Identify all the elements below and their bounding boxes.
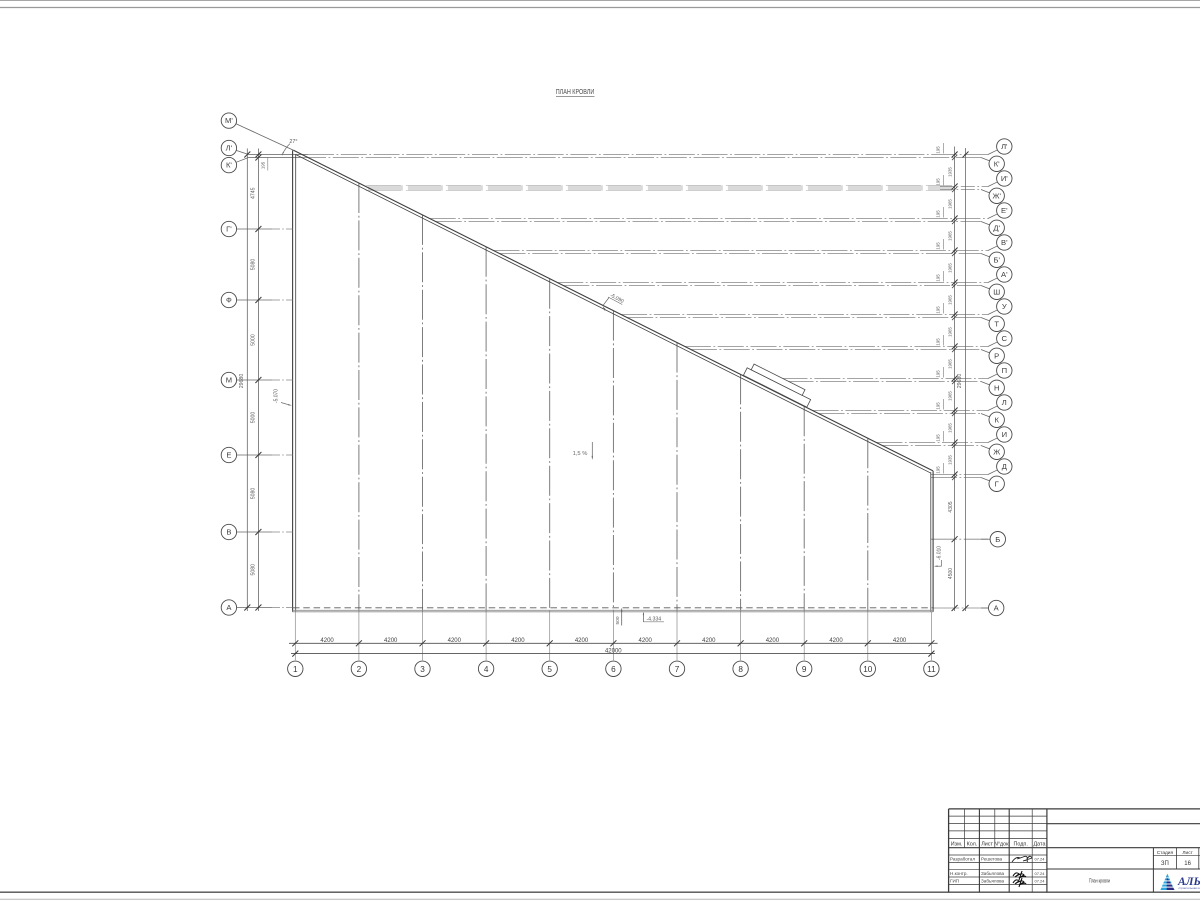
svg-text:5000: 5000 bbox=[251, 412, 257, 424]
svg-text:1965: 1965 bbox=[947, 327, 952, 337]
svg-text:195: 195 bbox=[935, 274, 940, 282]
svg-text:Д': Д' bbox=[993, 223, 1000, 232]
svg-text:5000: 5000 bbox=[251, 334, 257, 346]
svg-text:195: 195 bbox=[935, 466, 940, 474]
svg-text:-4.334: -4.334 bbox=[646, 617, 661, 623]
svg-text:1965: 1965 bbox=[947, 263, 952, 273]
svg-text:1,5 %: 1,5 % bbox=[573, 451, 588, 457]
svg-text:Б: Б bbox=[995, 535, 1000, 544]
svg-text:195: 195 bbox=[935, 178, 940, 186]
svg-text:4200: 4200 bbox=[766, 638, 780, 644]
svg-text:Н: Н bbox=[994, 383, 999, 392]
svg-text:К': К' bbox=[226, 161, 232, 170]
svg-text:М': М' bbox=[225, 116, 233, 125]
svg-text:27°: 27° bbox=[289, 139, 297, 145]
svg-text:195: 195 bbox=[935, 338, 940, 346]
svg-text:195: 195 bbox=[261, 161, 266, 169]
svg-text:11: 11 bbox=[927, 665, 936, 674]
svg-text:500: 500 bbox=[615, 616, 621, 624]
svg-text:План кровли: План кровли bbox=[1089, 879, 1110, 885]
svg-text:К': К' bbox=[994, 159, 1000, 168]
svg-text:4: 4 bbox=[484, 665, 489, 674]
svg-text:4200: 4200 bbox=[511, 638, 525, 644]
svg-text:ГИП: ГИП bbox=[950, 878, 959, 883]
svg-text:Г': Г' bbox=[226, 225, 232, 234]
svg-text:Л': Л' bbox=[1001, 142, 1008, 151]
svg-text:4200: 4200 bbox=[448, 638, 462, 644]
svg-text:5080: 5080 bbox=[251, 564, 257, 576]
svg-text:М: М bbox=[226, 376, 232, 385]
svg-text:А': А' bbox=[1001, 270, 1008, 279]
svg-text:Ш: Ш bbox=[993, 287, 1000, 296]
svg-text:Подп.: Подп. bbox=[1014, 842, 1028, 848]
svg-text:07.24: 07.24 bbox=[1034, 857, 1045, 862]
svg-text:Дата: Дата bbox=[1034, 842, 1046, 848]
svg-text:1965: 1965 bbox=[947, 231, 952, 241]
svg-text:Лист: Лист bbox=[981, 842, 993, 848]
svg-text:К: К bbox=[994, 415, 999, 424]
svg-text:Е': Е' bbox=[1001, 206, 1008, 215]
svg-text:Ж': Ж' bbox=[992, 191, 1001, 200]
svg-text:Л': Л' bbox=[226, 144, 233, 153]
svg-text:29680: 29680 bbox=[239, 374, 245, 389]
svg-text:4500: 4500 bbox=[948, 568, 954, 579]
svg-text:Н.контр.: Н.контр. bbox=[950, 871, 968, 876]
svg-text:5: 5 bbox=[547, 665, 552, 674]
svg-text:4200: 4200 bbox=[384, 638, 398, 644]
svg-text:5080: 5080 bbox=[251, 259, 257, 271]
svg-text:195: 195 bbox=[935, 306, 940, 314]
svg-text:Лист: Лист bbox=[1182, 850, 1193, 856]
svg-text:-6.010: -6.010 bbox=[937, 546, 943, 560]
svg-text:И: И bbox=[1002, 430, 1007, 439]
svg-text:2: 2 bbox=[357, 665, 362, 674]
svg-text:В: В bbox=[226, 528, 231, 537]
svg-text:195: 195 bbox=[935, 242, 940, 250]
svg-text:29680: 29680 bbox=[957, 374, 963, 389]
svg-text:В': В' bbox=[1001, 238, 1008, 247]
svg-text:Д: Д bbox=[1002, 462, 1007, 471]
svg-text:4200: 4200 bbox=[702, 638, 716, 644]
svg-text:5080: 5080 bbox=[251, 488, 257, 500]
svg-text:1935: 1935 bbox=[947, 455, 952, 465]
svg-text:Кол.: Кол. bbox=[967, 842, 978, 848]
svg-text:1965: 1965 bbox=[947, 391, 952, 401]
svg-text:1935: 1935 bbox=[947, 167, 952, 177]
svg-text:И': И' bbox=[1001, 174, 1008, 183]
svg-text:С: С bbox=[1002, 334, 1008, 343]
svg-text:Г: Г bbox=[995, 479, 999, 488]
svg-text:195: 195 bbox=[935, 434, 940, 442]
svg-text:1965: 1965 bbox=[947, 359, 952, 369]
svg-text:195: 195 bbox=[935, 370, 940, 378]
svg-text:У: У bbox=[1002, 302, 1007, 311]
svg-text:Ж: Ж bbox=[993, 447, 1000, 456]
svg-text:Ф: Ф bbox=[226, 296, 232, 305]
svg-text:строительная компания: строительная компания bbox=[1179, 886, 1200, 890]
svg-text:Стадия: Стадия bbox=[1157, 850, 1174, 856]
svg-text:4200: 4200 bbox=[320, 638, 334, 644]
svg-text:Изм.: Изм. bbox=[951, 842, 963, 848]
svg-text:1: 1 bbox=[293, 665, 298, 674]
svg-text:4305: 4305 bbox=[948, 501, 954, 512]
svg-text:Забьялова: Забьялова bbox=[981, 871, 1005, 876]
svg-text:195: 195 bbox=[935, 146, 940, 154]
svg-text:195: 195 bbox=[935, 210, 940, 218]
svg-text:4200: 4200 bbox=[639, 638, 653, 644]
svg-text:Л: Л bbox=[1002, 398, 1007, 407]
svg-text:Разработал: Разработал bbox=[950, 857, 975, 862]
svg-text:4200: 4200 bbox=[829, 638, 843, 644]
svg-text:07.24: 07.24 bbox=[1034, 878, 1045, 883]
svg-text:1965: 1965 bbox=[947, 199, 952, 209]
svg-text:1965: 1965 bbox=[947, 295, 952, 305]
svg-text:Т: Т bbox=[994, 319, 999, 328]
svg-text:07.24: 07.24 bbox=[1034, 871, 1045, 876]
svg-text:Решетова: Решетова bbox=[981, 857, 1003, 862]
svg-text:16: 16 bbox=[1184, 861, 1191, 867]
svg-text:9: 9 bbox=[802, 665, 807, 674]
svg-text:N°док.: N°док. bbox=[994, 842, 1010, 848]
svg-text:8: 8 bbox=[738, 665, 743, 674]
svg-text:42000: 42000 bbox=[605, 648, 622, 654]
svg-text:6: 6 bbox=[611, 665, 616, 674]
svg-text:Р: Р bbox=[994, 351, 999, 360]
svg-text:10: 10 bbox=[863, 665, 873, 674]
svg-text:7: 7 bbox=[675, 665, 680, 674]
svg-text:ПЛАН КРОВЛИ: ПЛАН КРОВЛИ bbox=[556, 89, 595, 96]
svg-text:4200: 4200 bbox=[893, 638, 907, 644]
svg-text:195: 195 bbox=[935, 402, 940, 410]
svg-text:4200: 4200 bbox=[575, 638, 589, 644]
svg-text:Б': Б' bbox=[993, 255, 1000, 264]
svg-text:-5.070: -5.070 bbox=[274, 389, 280, 403]
svg-text:1965: 1965 bbox=[947, 423, 952, 433]
svg-text:Е: Е bbox=[226, 451, 231, 460]
svg-text:ЗП: ЗП bbox=[1161, 861, 1169, 867]
svg-text:4745: 4745 bbox=[251, 187, 257, 199]
svg-text:Забьялова: Забьялова bbox=[981, 878, 1005, 883]
svg-text:П: П bbox=[1002, 366, 1007, 375]
svg-text:3: 3 bbox=[420, 665, 425, 674]
